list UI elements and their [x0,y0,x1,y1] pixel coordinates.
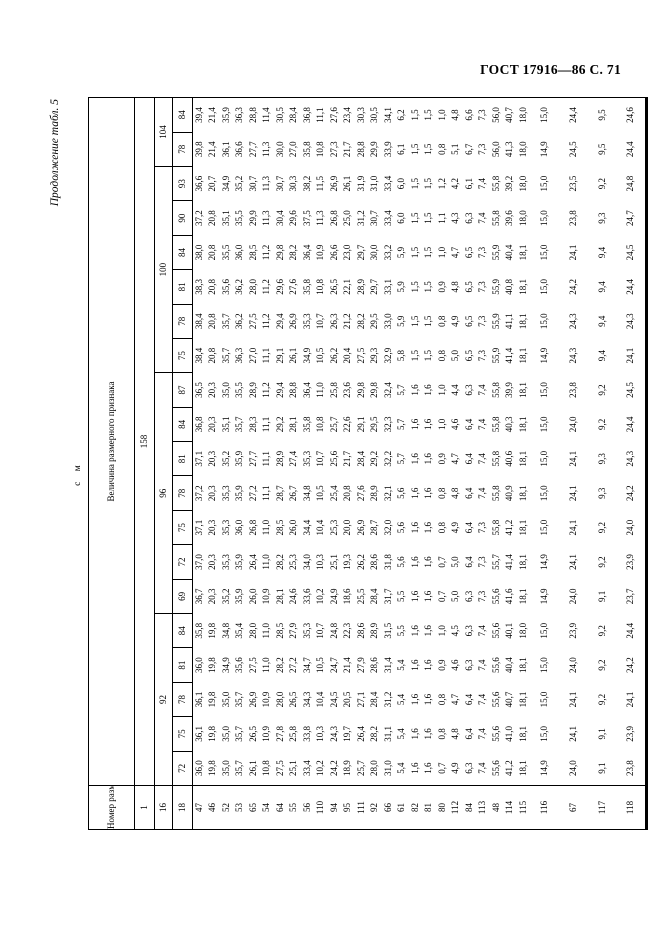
value-cell: 18,1 [517,304,531,338]
value-cell: 5,4 [395,751,409,785]
value-cell: 36,6 [233,132,247,166]
value-cell: 35,2 [220,579,234,613]
value-cell: 30,0 [274,132,288,166]
value-cell: 56,0 [490,132,504,166]
value-cell: 1,6 [422,510,436,544]
value-cell: 41,6 [503,579,517,613]
table-row-64: 6427,527,828,028,228,528,128,228,528,728… [274,98,288,830]
value-cell: 20,7 [206,166,220,200]
value-cell: 23,5 [559,166,588,200]
waist-value-18: 78 [173,132,193,166]
feature-number: 81 [422,786,436,830]
value-cell: 23,9 [617,717,646,751]
value-cell: 55,6 [490,614,504,648]
value-cell: 33,1 [382,270,396,304]
value-cell: 36,0 [193,648,207,682]
table-row-56: 5633,433,834,334,735,333,634,034,434,835… [301,98,315,830]
value-cell: 1,6 [422,373,436,407]
value-cell: 1,0 [436,235,450,269]
value-cell: 20,3 [206,476,220,510]
value-cell: 55,9 [490,270,504,304]
value-cell: 28,0 [368,751,382,785]
value-cell: 6,3 [463,201,477,235]
value-cell: 35,0 [220,717,234,751]
value-cell: 1,6 [409,407,423,441]
value-cell: 6,4 [463,476,477,510]
feature-number: 56 [301,786,315,830]
value-cell: 6,5 [463,235,477,269]
value-cell: 35,3 [301,442,315,476]
value-cell: 27,1 [355,682,369,716]
value-cell: 7,3 [476,510,490,544]
value-cell: 25,0 [341,201,355,235]
value-cell: 0,7 [436,579,450,613]
value-cell: 34,9 [301,338,315,372]
value-cell: 55,8 [490,407,504,441]
value-cell: 14,9 [530,132,559,166]
feature-number: 95 [341,786,355,830]
value-cell: 1,5 [422,338,436,372]
value-cell: 22,6 [341,407,355,441]
value-cell: 10,5 [314,476,328,510]
value-cell: 29,5 [368,407,382,441]
value-cell: 1,6 [422,407,436,441]
value-cell: 35,7 [233,407,247,441]
value-cell: 24,5 [617,373,646,407]
value-cell: 37,2 [193,201,207,235]
value-cell: 1,6 [409,751,423,785]
value-cell: 35,7 [220,338,234,372]
value-cell: 21,4 [341,648,355,682]
value-cell: 19,3 [341,545,355,579]
value-cell: 26,7 [287,476,301,510]
feature-number: 67 [559,786,588,830]
value-cell: 55,8 [490,442,504,476]
feature-number: 115 [517,786,531,830]
value-cell: 41,4 [503,338,517,372]
value-cell: 7,3 [476,235,490,269]
value-cell: 10,7 [314,304,328,338]
value-cell: 7,4 [476,614,490,648]
value-cell: 1,6 [422,442,436,476]
value-cell: 35,5 [233,201,247,235]
value-cell: 29,4 [274,304,288,338]
value-cell: 33,4 [301,751,315,785]
value-cell: 5,4 [395,717,409,751]
value-cell: 35,8 [193,614,207,648]
value-cell: 19,7 [341,717,355,751]
value-cell: 27,7 [247,132,261,166]
value-cell: 40,3 [503,407,517,441]
value-cell: 34,0 [301,545,315,579]
value-cell: 7,4 [476,442,490,476]
value-cell: 55,6 [490,751,504,785]
value-cell: 28,6 [368,545,382,579]
value-cell: 32,3 [382,407,396,441]
value-cell: 30,3 [355,98,369,133]
value-cell: 35,7 [233,717,247,751]
value-cell: 26,0 [247,579,261,613]
value-cell: 30,4 [274,201,288,235]
value-cell: 11,1 [260,338,274,372]
value-cell: 25,1 [328,545,342,579]
value-cell: 4,7 [449,682,463,716]
value-cell: 9,5 [588,132,617,166]
value-cell: 55,8 [490,476,504,510]
value-cell: 6,4 [463,717,477,751]
table-row-54: 5410,810,910,911,011,010,911,011,011,111… [260,98,274,830]
value-cell: 24,4 [617,407,646,441]
value-cell: 35,6 [220,270,234,304]
value-cell: 27,8 [274,717,288,751]
feature-number: 111 [355,786,369,830]
value-cell: 28,8 [355,132,369,166]
value-cell: 10,3 [314,545,328,579]
table-row-46: 4619,819,819,819,819,820,320,320,320,320… [206,98,220,830]
value-cell: 29,3 [368,338,382,372]
value-cell: 1,6 [409,442,423,476]
value-cell: 24,2 [617,648,646,682]
feature-number: 46 [206,786,220,830]
value-cell: 36,1 [193,682,207,716]
value-cell: 1,5 [409,338,423,372]
table-row-116: 11614,915,015,015,015,014,914,915,015,01… [530,98,559,830]
value-cell: 7,3 [476,132,490,166]
value-cell: 40,6 [503,442,517,476]
value-cell: 11,1 [260,476,274,510]
value-cell: 30,3 [287,166,301,200]
value-cell: 19,8 [206,648,220,682]
value-cell: 25,3 [328,510,342,544]
value-cell: 26,5 [328,270,342,304]
value-cell: 18,1 [517,648,531,682]
value-cell: 11,2 [260,235,274,269]
value-cell: 34,4 [301,510,315,544]
value-cell: 28,4 [368,579,382,613]
value-cell: 37,2 [193,476,207,510]
waist-value-19: 84 [173,98,193,133]
value-cell: 24,8 [617,166,646,200]
value-cell: 23,9 [559,614,588,648]
value-cell: 0,7 [436,751,450,785]
value-cell: 18,0 [517,132,531,166]
value-cell: 11,0 [260,545,274,579]
table-row-80: 800,70,80,80,91,00,70,70,80,80,91,01,00,… [436,98,450,830]
waist-value-6: 72 [173,545,193,579]
value-cell: 35,7 [233,682,247,716]
value-cell: 10,2 [314,579,328,613]
value-cell: 26,1 [287,338,301,372]
value-cell: 27,5 [355,338,369,372]
value-cell: 14,9 [530,545,559,579]
value-cell: 15,0 [530,270,559,304]
value-cell: 4,7 [449,442,463,476]
value-cell: 29,9 [368,132,382,166]
feature-number: 116 [530,786,559,830]
value-cell: 34,9 [220,166,234,200]
table-row-47: 4736,036,136,136,035,836,737,037,137,237… [193,98,207,830]
value-cell: 26,9 [328,166,342,200]
waist-value-14: 81 [173,270,193,304]
value-cell: 27,5 [247,648,261,682]
value-cell: 24,1 [559,545,588,579]
value-cell: 20,3 [206,579,220,613]
value-cell: 23,8 [617,751,646,785]
value-cell: 23,7 [617,579,646,613]
value-cell: 11,3 [260,166,274,200]
value-cell: 36,0 [193,751,207,785]
value-cell: 9,5 [588,98,617,133]
value-cell: 1,6 [409,545,423,579]
value-cell: 4,8 [449,717,463,751]
value-cell: 7,4 [476,751,490,785]
feature-number-1: 1 [135,786,155,830]
value-cell: 28,6 [355,614,369,648]
value-cell: 36,4 [301,373,315,407]
value-cell: 9,1 [588,717,617,751]
value-cell: 18,1 [517,751,531,785]
value-cell: 35,5 [233,373,247,407]
value-cell: 24,1 [617,338,646,372]
value-cell: 21,2 [341,304,355,338]
value-cell: 26,5 [247,717,261,751]
value-cell: 30,0 [368,235,382,269]
value-cell: 30,7 [368,201,382,235]
value-cell: 11,1 [314,98,328,133]
value-cell: 1,5 [422,235,436,269]
value-cell: 21,4 [206,132,220,166]
chest-group-100: 100 [155,166,173,372]
feature-number: 112 [449,786,463,830]
value-cell: 1,0 [436,98,450,133]
value-cell: 33,6 [301,579,315,613]
value-cell: 15,0 [530,373,559,407]
table-row-115: 11518,118,118,118,118,018,118,118,118,11… [517,98,531,830]
value-cell: 35,0 [220,682,234,716]
feature-number: 118 [617,786,646,830]
value-cell: 38,4 [193,338,207,372]
value-cell: 35,0 [220,751,234,785]
value-cell: 5,0 [449,338,463,372]
value-cell: 7,4 [476,648,490,682]
value-cell: 27,0 [287,132,301,166]
table-row-53: 5335,735,735,735,635,435,935,936,035,935… [233,98,247,830]
value-cell: 10,4 [314,510,328,544]
feature-number: 80 [436,786,450,830]
value-cell: 1,6 [422,682,436,716]
table-row-84: 846,36,46,46,36,36,36,46,46,46,46,46,36,… [463,98,477,830]
value-cell: 4,9 [449,510,463,544]
header-row-chest: 169296100104 [155,98,173,830]
value-cell: 32,1 [382,476,396,510]
value-cell: 1,5 [409,201,423,235]
value-cell: 37,5 [301,201,315,235]
table-row-117: 1179,19,19,29,29,29,19,29,29,39,39,29,29… [588,98,617,830]
value-cell: 15,0 [530,235,559,269]
value-cell: 1,6 [409,373,423,407]
value-cell: 18,1 [517,442,531,476]
value-cell: 1,5 [422,304,436,338]
value-cell: 4,2 [449,166,463,200]
value-cell: 20,3 [206,407,220,441]
value-cell: 6,1 [463,166,477,200]
value-cell: 6,6 [463,98,477,133]
value-cell: 7,3 [476,338,490,372]
value-cell: 29,2 [368,442,382,476]
value-cell: 26,3 [328,304,342,338]
value-cell: 6,3 [463,648,477,682]
waist-value-2: 78 [173,682,193,716]
value-cell: 21,7 [341,442,355,476]
value-cell: 20,8 [341,476,355,510]
value-cell: 24,1 [559,235,588,269]
value-cell: 10,8 [314,407,328,441]
value-cell: 26,9 [247,682,261,716]
value-cell: 29,7 [355,235,369,269]
value-cell: 11,5 [314,166,328,200]
value-cell: 6,0 [395,166,409,200]
value-cell: 23,9 [617,545,646,579]
value-cell: 4,3 [449,201,463,235]
value-cell: 40,9 [503,476,517,510]
value-cell: 18,1 [517,338,531,372]
waist-value-1: 75 [173,717,193,751]
value-cell: 5,4 [395,682,409,716]
value-cell: 28,2 [274,545,288,579]
value-cell: 25,5 [355,579,369,613]
value-cell: 4,9 [449,751,463,785]
value-cell: 5,6 [395,510,409,544]
waist-value-11: 87 [173,373,193,407]
value-cell: 6,4 [463,682,477,716]
value-cell: 24,2 [559,270,588,304]
value-cell: 0,8 [436,304,450,338]
value-cell: 10,8 [314,270,328,304]
value-cell: 24,5 [328,682,342,716]
value-cell: 55,8 [490,510,504,544]
value-cell: 26,9 [287,304,301,338]
value-cell: 28,2 [287,235,301,269]
value-cell: 55,9 [490,338,504,372]
waist-value-10: 84 [173,407,193,441]
waist-value-17: 93 [173,166,193,200]
value-cell: 29,8 [274,235,288,269]
table-row-65: 6526,126,526,927,528,026,026,426,827,227… [247,98,261,830]
table-row-66: 6631,031,131,231,431,531,731,832,032,132… [382,98,396,830]
value-cell: 39,6 [503,201,517,235]
value-cell: 32,9 [382,338,396,372]
corner-header: Номер размерного признака [89,786,135,830]
waist-value-15: 84 [173,235,193,269]
value-cell: 32,4 [382,373,396,407]
value-cell: 9,4 [588,270,617,304]
value-cell: 30,5 [368,98,382,133]
value-cell: 5,9 [395,304,409,338]
value-cell: 24,6 [617,98,646,133]
value-cell: 24,3 [617,442,646,476]
value-cell: 40,1 [503,614,517,648]
value-cell: 15,0 [530,614,559,648]
value-cell: 35,2 [233,166,247,200]
table-row-81: 811,61,61,61,61,61,61,61,61,61,61,61,61,… [422,98,436,830]
value-cell: 36,2 [233,270,247,304]
value-cell: 33,4 [382,166,396,200]
value-cell: 9,1 [588,579,617,613]
value-cell: 35,3 [301,614,315,648]
value-cell: 24,7 [328,648,342,682]
value-cell: 35,8 [301,132,315,166]
value-cell: 1,6 [422,751,436,785]
value-cell: 6,2 [395,98,409,133]
value-cell: 20,0 [341,510,355,544]
value-cell: 15,0 [530,648,559,682]
value-cell: 29,4 [274,373,288,407]
value-cell: 18,1 [517,270,531,304]
value-cell: 28,9 [368,614,382,648]
value-cell: 24,0 [559,648,588,682]
value-cell: 4,6 [449,648,463,682]
value-cell: 20,4 [341,338,355,372]
value-cell: 31,9 [355,166,369,200]
value-cell: 41,4 [503,545,517,579]
value-cell: 35,1 [220,407,234,441]
value-cell: 7,3 [476,98,490,133]
value-cell: 24,4 [559,98,588,133]
value-cell: 36,8 [301,98,315,133]
table-row-114: 11441,241,040,740,440,141,641,441,240,94… [503,98,517,830]
value-cell: 55,6 [490,579,504,613]
value-cell: 28,2 [368,717,382,751]
value-cell: 9,3 [588,442,617,476]
value-cell: 10,4 [314,682,328,716]
value-cell: 1,5 [409,166,423,200]
value-cell: 35,3 [220,510,234,544]
value-cell: 41,1 [503,304,517,338]
value-cell: 1,6 [409,717,423,751]
value-cell: 20,3 [206,373,220,407]
value-cell: 10,2 [314,751,328,785]
value-cell: 1,6 [409,579,423,613]
value-cell: 27,5 [274,751,288,785]
value-cell: 36,3 [233,98,247,133]
value-cell: 1,5 [409,235,423,269]
value-cell: 39,4 [193,98,207,133]
value-cell: 26,1 [341,166,355,200]
value-cell: 24,8 [328,614,342,648]
value-cell: 36,1 [193,717,207,751]
value-cell: 26,9 [355,510,369,544]
value-cell: 5,7 [395,373,409,407]
value-cell: 29,7 [368,270,382,304]
value-cell: 27,3 [328,132,342,166]
value-cell: 24,0 [559,751,588,785]
value-cell: 24,2 [617,476,646,510]
value-cell: 28,9 [247,373,261,407]
value-cell: 24,4 [617,270,646,304]
value-cell: 7,4 [476,373,490,407]
value-cell: 18,1 [517,682,531,716]
value-cell: 20,8 [206,201,220,235]
value-cell: 9,2 [588,545,617,579]
value-cell: 55,7 [490,545,504,579]
value-cell: 28,1 [274,579,288,613]
value-cell: 5,0 [449,579,463,613]
value-cell: 1,6 [409,648,423,682]
value-cell: 24,0 [617,510,646,544]
value-cell: 7,4 [476,201,490,235]
value-cell: 23,4 [341,98,355,133]
value-cell: 27,7 [247,442,261,476]
